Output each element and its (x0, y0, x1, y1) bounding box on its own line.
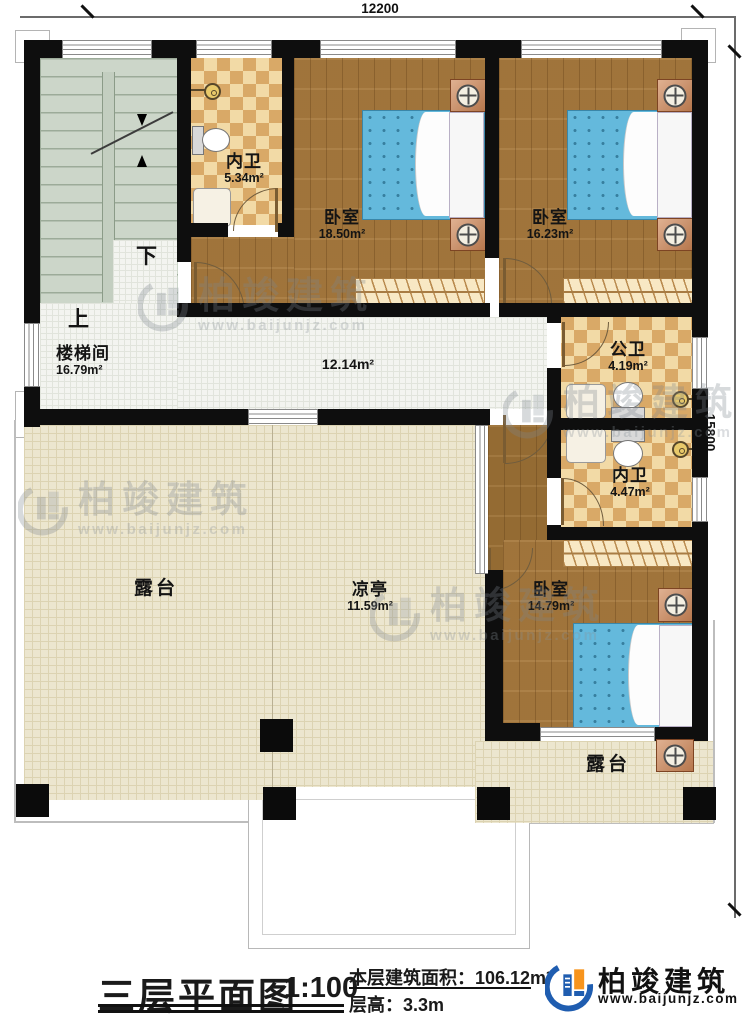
room-label-bedroom2: 卧室 16.23m² (508, 208, 592, 241)
stair-arrow-icon (137, 155, 147, 167)
wall (547, 368, 561, 425)
room-label-stairwell: 楼梯间 16.79m² (56, 344, 140, 377)
column (683, 787, 716, 820)
wall (547, 425, 561, 478)
terrace-left-floor (24, 425, 272, 800)
room-label-pavilion: 凉亭 11.59m² (328, 580, 412, 613)
wall (559, 418, 692, 430)
room-name: 公卫 (589, 340, 667, 359)
door-leaf (503, 258, 506, 303)
room-label-bath-top: 内卫 5.34m² (206, 152, 282, 185)
top-dimension-line (20, 16, 736, 18)
room-label-bedroom3: 卧室 14.79m² (501, 580, 601, 613)
door-leaf (503, 415, 506, 463)
room-label-bath-bottom: 内卫 4.47m² (591, 466, 669, 499)
floor-area-label: 本层建筑面积： (349, 968, 475, 988)
lamp-icon (665, 594, 688, 617)
toilet-bowl-icon (613, 440, 643, 467)
window (196, 40, 272, 58)
stairs-up-label: 上 (68, 303, 89, 333)
top-dimension-label: 12200 (340, 1, 420, 16)
window (248, 409, 318, 425)
floor-height-row: 层高：3.3m (349, 991, 444, 1017)
room-area: 12.14m² (303, 357, 393, 373)
room-name: 内卫 (591, 466, 669, 485)
nightstand (657, 218, 693, 251)
room-area: 11.59m² (328, 599, 412, 613)
wall (270, 40, 320, 58)
bed-headboard (659, 625, 693, 727)
room-name: 卧室 (501, 580, 601, 599)
room-name: 卧室 (300, 208, 384, 227)
wall (282, 58, 294, 225)
window (521, 40, 662, 58)
wall (177, 303, 490, 317)
window (320, 40, 456, 58)
room-area: 16.79m² (56, 363, 140, 377)
floor-plan-sheet: 12200 15800 (0, 0, 750, 1023)
wall (278, 223, 294, 237)
plan-scale: 1:100 (284, 972, 358, 1005)
window (692, 337, 708, 389)
room-name: 露台 (586, 754, 630, 775)
brand-logo-icon (545, 958, 595, 1014)
nightstand (657, 79, 693, 112)
parapet-outline (14, 821, 250, 823)
light-fixture-icon (672, 391, 689, 408)
wardrobe (355, 278, 485, 306)
wardrobe (563, 540, 694, 567)
nightstand (658, 588, 694, 622)
stairs-down-label: 下 (136, 240, 157, 270)
wall (485, 58, 499, 258)
wall (692, 40, 708, 337)
wall (24, 40, 40, 323)
wall (316, 409, 490, 425)
room-area: 18.50m² (300, 227, 384, 241)
room-label-bedroom1: 卧室 18.50m² (300, 208, 384, 241)
title-underline (98, 1010, 344, 1013)
room-name: 凉亭 (328, 580, 412, 599)
door-leaf (562, 322, 565, 367)
room-name: 卧室 (508, 208, 592, 227)
light-fixture-icon (672, 441, 689, 458)
room-area: 14.79m² (501, 599, 601, 613)
room-label-terrace-right: 露台 (568, 754, 648, 775)
wall (547, 317, 561, 323)
room-area: 16.23m² (508, 227, 592, 241)
column (477, 787, 510, 820)
wall (547, 527, 692, 540)
window (540, 727, 655, 741)
room-name: 内卫 (206, 152, 282, 171)
sink-icon (566, 428, 606, 463)
nightstand (450, 79, 486, 112)
wall (499, 303, 692, 317)
room-label-terrace-left: 露台 (118, 578, 194, 599)
door-leaf (561, 478, 564, 525)
wall (692, 520, 708, 741)
sink-icon (193, 188, 231, 227)
lamp-icon (457, 84, 480, 107)
brand-site: www.baijunjz.com (598, 991, 739, 1006)
floor-area-value: 106.12m² (475, 968, 552, 988)
column (263, 787, 296, 820)
bed-headboard (657, 112, 692, 218)
lamp-icon (664, 84, 687, 107)
light-fixture-icon (204, 83, 221, 100)
window (692, 477, 708, 522)
wall (485, 723, 540, 741)
window (62, 40, 152, 58)
room-area: 5.34m² (206, 171, 282, 185)
toilet-bowl-icon (202, 128, 230, 152)
parapet-outline (14, 420, 16, 822)
toilet-bowl-icon (613, 382, 643, 409)
room-area: 4.47m² (591, 485, 669, 499)
column (260, 719, 293, 752)
nightstand (450, 218, 486, 251)
lamp-icon (457, 223, 480, 246)
floor-height-label: 层高： (349, 995, 403, 1015)
window (24, 323, 40, 387)
stair-arrow-icon (137, 114, 147, 126)
corridor-area-label: 12.14m² (303, 357, 393, 373)
wall (177, 223, 228, 237)
window (475, 425, 488, 574)
room-label-public-bath: 公卫 4.19m² (589, 340, 667, 373)
wall (150, 40, 196, 58)
lamp-icon (664, 223, 687, 246)
title-block-divider (349, 987, 531, 989)
right-dimension-line (734, 16, 736, 918)
room-name: 露台 (134, 578, 178, 599)
bed-headboard (449, 112, 484, 218)
sink-icon (566, 384, 606, 419)
wall (692, 387, 708, 477)
floor-height-value: 3.3m (403, 995, 444, 1015)
lamp-icon (664, 744, 687, 767)
nightstand (656, 739, 694, 772)
column (16, 784, 49, 817)
wall (24, 409, 248, 425)
wall (454, 40, 521, 58)
wardrobe (563, 278, 694, 306)
room-name: 楼梯间 (56, 344, 140, 363)
room-area: 4.19m² (589, 359, 667, 373)
